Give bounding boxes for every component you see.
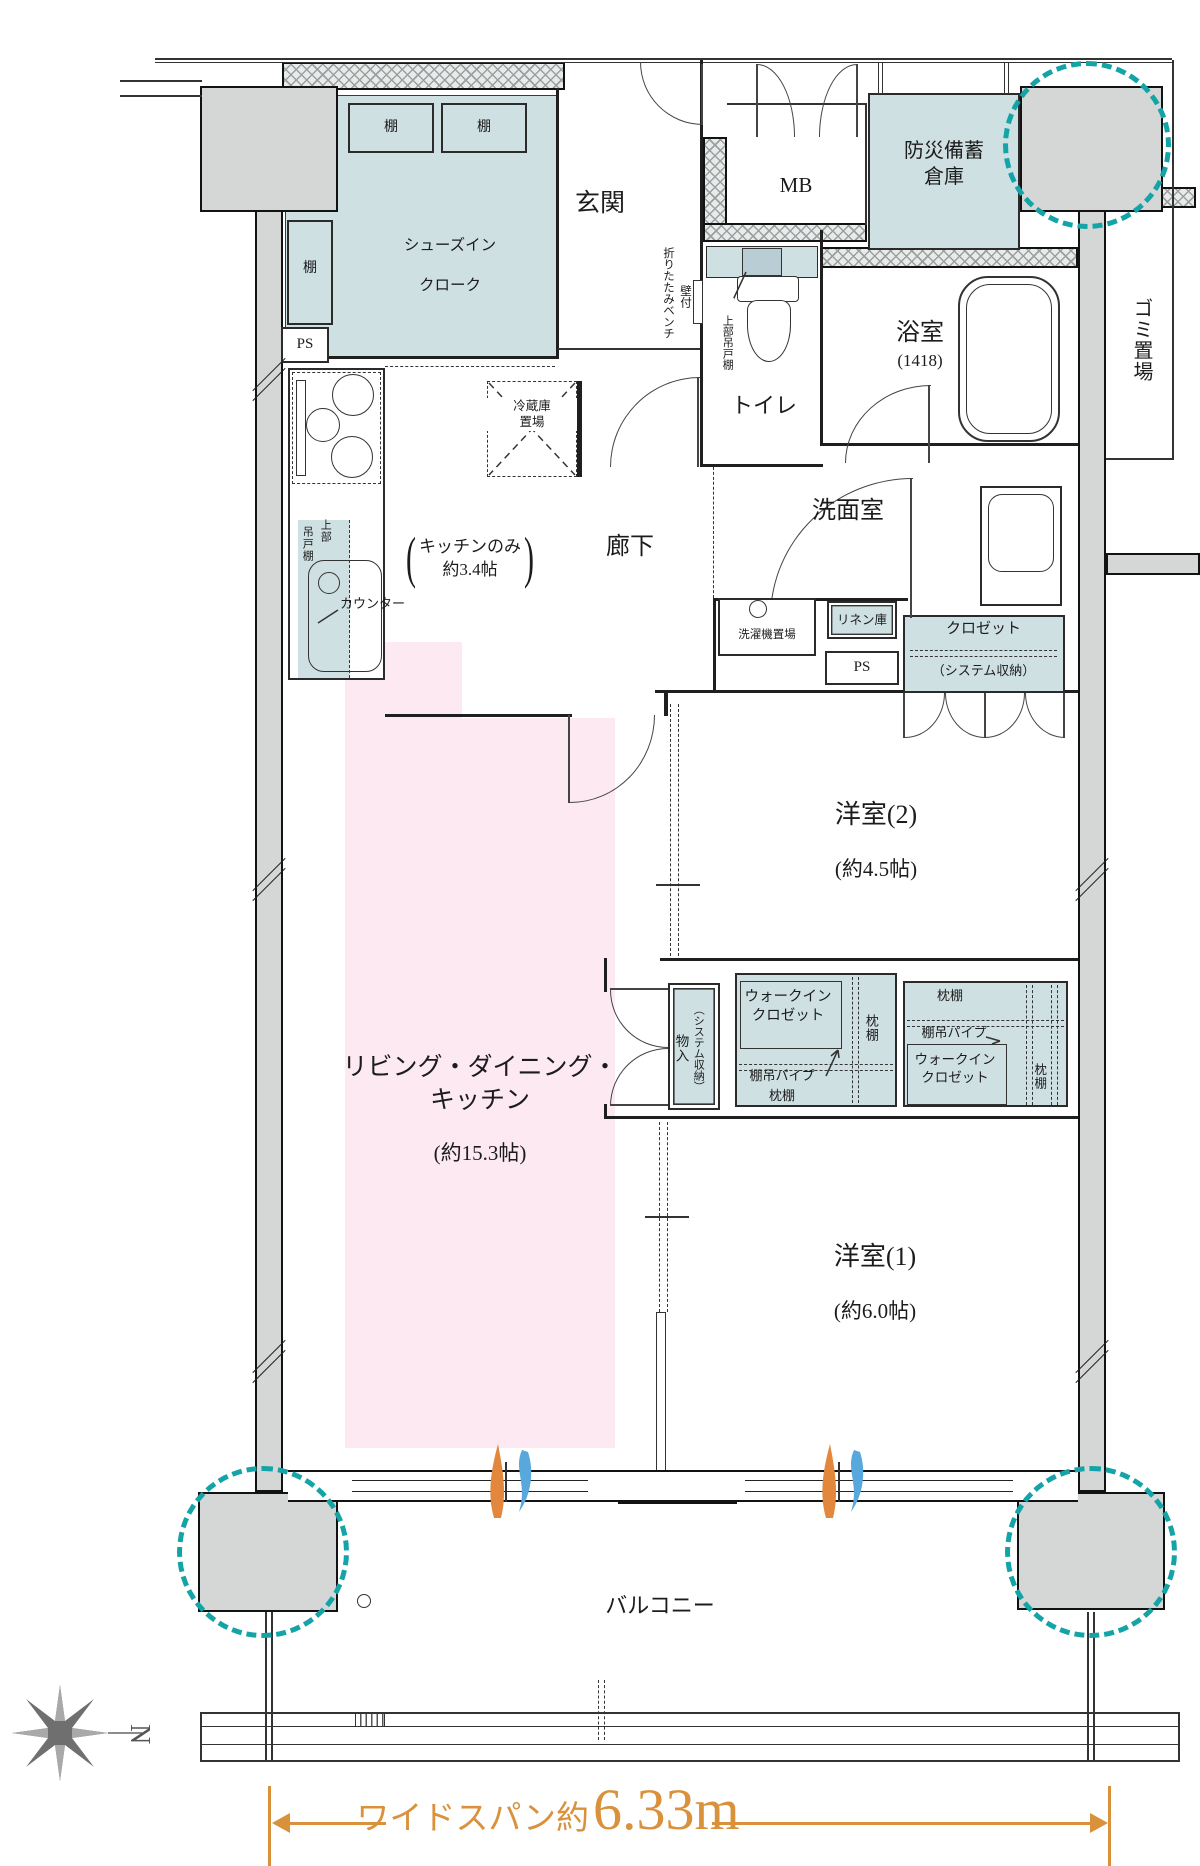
wall-line	[120, 80, 202, 82]
kitchen-area-note: ( キッチンのみ約3.4帖 )	[392, 536, 548, 582]
door-swing-arc	[845, 385, 931, 463]
bathroom-label: 浴室	[880, 318, 960, 349]
shelf-label: 棚	[289, 260, 331, 278]
pillar-highlight-circle	[1005, 1466, 1177, 1638]
door-swing-arc	[610, 377, 700, 467]
wall-line	[120, 95, 202, 97]
stove-burner	[331, 436, 373, 478]
bathtub-inner	[966, 284, 1052, 434]
shelf-box: 棚	[348, 103, 434, 153]
door-swing-arc	[570, 715, 655, 803]
wall	[556, 88, 559, 358]
door-swing-arc	[610, 990, 668, 1048]
sliding-door	[670, 704, 671, 956]
sic-label: シューズインクローク	[350, 226, 550, 307]
entry-step-line	[558, 348, 700, 350]
wall	[577, 381, 582, 477]
dimension-label: ワイドスパン約 6.33m	[380, 1772, 716, 1847]
ps-label: PS	[827, 658, 897, 678]
wall	[385, 714, 572, 717]
door-swing-arc	[1025, 693, 1065, 738]
flame-icon	[482, 1442, 544, 1520]
dimension-line	[712, 1822, 1092, 1825]
toilet-cistern-box	[742, 248, 782, 276]
dimension-tick	[1108, 1786, 1111, 1866]
storage-type-label: （システム収納）	[691, 990, 705, 1105]
door-leaf	[856, 64, 858, 137]
wall	[660, 958, 1078, 961]
hanging-shelf-label: 吊戸棚	[300, 508, 314, 580]
pillow-shelf-label: 枕棚	[915, 988, 985, 1005]
ldk-size-label: (約15.3帖)	[330, 1140, 630, 1167]
balcony-rail	[200, 1712, 1180, 1714]
folding-bench	[693, 280, 703, 324]
balcony-rail	[200, 1760, 1180, 1762]
wall-hatched	[820, 247, 1078, 268]
washer-pan	[718, 598, 816, 656]
toilet-bowl	[747, 300, 791, 362]
floor-plan: 棚 棚 棚 PS 洗濯機置場 リネン庫 PS クロゼット （システム収納） 吊戸…	[0, 0, 1200, 1866]
door-leaf	[984, 693, 986, 738]
shelf-label: 棚	[350, 119, 432, 137]
disaster-storage-label: 防災備蓄倉庫	[874, 138, 1014, 190]
sliding-door	[667, 1122, 668, 1312]
wall-stub	[1106, 553, 1200, 575]
stove-burner	[306, 408, 340, 442]
outer-wall-left	[255, 210, 283, 1492]
door-swing-arc	[905, 693, 945, 738]
door-leaf	[697, 377, 699, 467]
ldk-label: リビング・ダイニング・キッチン	[330, 1052, 630, 1117]
corridor-label: 廊下	[600, 532, 660, 563]
pillar-highlight-circle	[177, 1466, 349, 1638]
washroom-opening-dashed	[713, 467, 714, 598]
balcony-rail	[200, 1726, 1180, 1727]
balcony-rail	[200, 1744, 1180, 1745]
washer-drain	[749, 600, 767, 618]
bench-label: 折りたたみベンチ	[660, 232, 675, 354]
bench-mount-label: 壁付	[677, 272, 692, 320]
washer-label: 洗濯機置場	[718, 628, 816, 643]
door-leaf	[568, 715, 570, 803]
wall	[664, 690, 668, 716]
stove-side-panel	[296, 380, 306, 476]
stove-burner	[332, 374, 374, 416]
wall	[604, 1116, 1078, 1119]
pillow-shelf-label: 枕棚	[752, 1088, 812, 1105]
hanging-upper-label: 上部	[318, 508, 332, 554]
wic-label: ウォークインクロゼット	[738, 988, 838, 1026]
closet-label: クロゼット	[905, 620, 1062, 640]
genkan-label: 玄関	[560, 188, 640, 221]
door-leaf	[1004, 62, 1009, 94]
toilet-label: トイレ	[722, 392, 806, 421]
window-sliding	[352, 1480, 588, 1492]
door-leaf	[903, 693, 905, 738]
shelf-label: 棚	[443, 119, 525, 137]
toilet-tank	[737, 276, 799, 302]
balcony-divider-dashed	[604, 1680, 605, 1740]
wall-hatched	[1160, 187, 1196, 208]
storage-label: 物入	[672, 1008, 690, 1088]
balcony-drain-box	[355, 1713, 385, 1727]
dimension-value: 6.33m	[593, 1772, 740, 1847]
drain-circle	[357, 1594, 371, 1608]
bedroom2-label: 洋室(2)	[806, 798, 946, 832]
vanity-basin	[988, 494, 1054, 572]
entry-frame-dashed	[385, 366, 555, 367]
pillow-shelf-label: 枕棚	[862, 1000, 879, 1056]
door-leaf	[610, 988, 668, 990]
hanger-pipe-label: 棚吊パイプ	[912, 1025, 996, 1042]
wic-label: ウォークインクロゼット	[906, 1051, 1004, 1086]
bathroom-size-label: (1418)	[880, 350, 960, 372]
pipe-space-box: PS	[825, 651, 899, 685]
garbage-area-label: ゴミ置場	[1128, 272, 1154, 407]
wall-hatched	[703, 223, 867, 242]
pillar-highlight-circle	[1003, 61, 1171, 229]
sliding-door	[659, 1122, 660, 1312]
shelf-box: 棚	[287, 220, 333, 325]
wall	[700, 464, 823, 467]
pipe-space-box: PS	[281, 327, 329, 363]
door-swing-arc	[640, 62, 703, 125]
door-swing-arc	[945, 693, 985, 738]
dimension-prefix: ワイドスパン約	[356, 1798, 589, 1841]
garbage-area-line	[1106, 458, 1174, 460]
wall	[700, 244, 703, 467]
bedroom1-size-label: (約6.0帖)	[795, 1298, 955, 1325]
pillar	[200, 86, 338, 212]
mb-label: MB	[766, 172, 826, 199]
door-leaf	[756, 64, 758, 137]
faucet	[318, 572, 340, 594]
bedroom2-size-label: (約4.5帖)	[796, 856, 956, 883]
wall-line	[155, 58, 1172, 60]
door-leaf	[701, 64, 703, 125]
flame-icon	[814, 1442, 876, 1520]
paren-close: )	[524, 522, 534, 596]
wall	[865, 103, 867, 225]
toilet-upper-shelf-label: 上部吊戸棚	[720, 298, 734, 386]
outer-wall-right	[1078, 210, 1106, 1492]
wall	[604, 958, 607, 992]
washroom-label: 洗面室	[790, 496, 906, 527]
balcony-divider-dashed	[598, 1680, 599, 1740]
door-swing-arc	[819, 64, 857, 137]
door-swing-arc	[757, 64, 795, 137]
balcony-label: バルコニー	[595, 1592, 725, 1621]
wall	[713, 598, 716, 693]
hanger-pipe-label: 棚吊パイプ	[740, 1068, 824, 1085]
balcony-rail-cap	[1178, 1712, 1180, 1760]
kitchen-note-text: キッチンのみ約3.4帖	[416, 536, 524, 582]
garbage-area-line	[1172, 60, 1174, 460]
sliding-door	[678, 704, 679, 956]
compass-north-label: N	[121, 1717, 157, 1751]
closet-box: クロゼット （システム収納）	[903, 615, 1065, 693]
door-leaf	[878, 62, 883, 94]
balcony-rail-cap	[200, 1712, 202, 1760]
pillow-shelf-label: 枕棚	[1031, 1048, 1047, 1104]
counter-label: カウンター	[340, 596, 410, 613]
wall	[656, 1312, 666, 1472]
door-leaf	[910, 478, 912, 618]
paren-open: (	[406, 522, 416, 596]
door-leaf	[1063, 693, 1065, 738]
door-swing-arc	[985, 693, 1025, 738]
bedroom1-label: 洋室(1)	[805, 1240, 945, 1274]
wall	[820, 230, 823, 446]
dimension-arrow-right	[1090, 1813, 1108, 1833]
window-sliding	[745, 1480, 1013, 1492]
dimension-tick	[268, 1786, 271, 1866]
linen-label: リネン庫	[829, 612, 895, 628]
fridge-label: 冷蔵庫置場	[487, 398, 577, 431]
ps-label: PS	[283, 335, 327, 355]
shelf-box: 棚	[441, 103, 527, 153]
door-leaf	[928, 385, 930, 463]
closet-type-label: （システム収納）	[905, 663, 1062, 680]
